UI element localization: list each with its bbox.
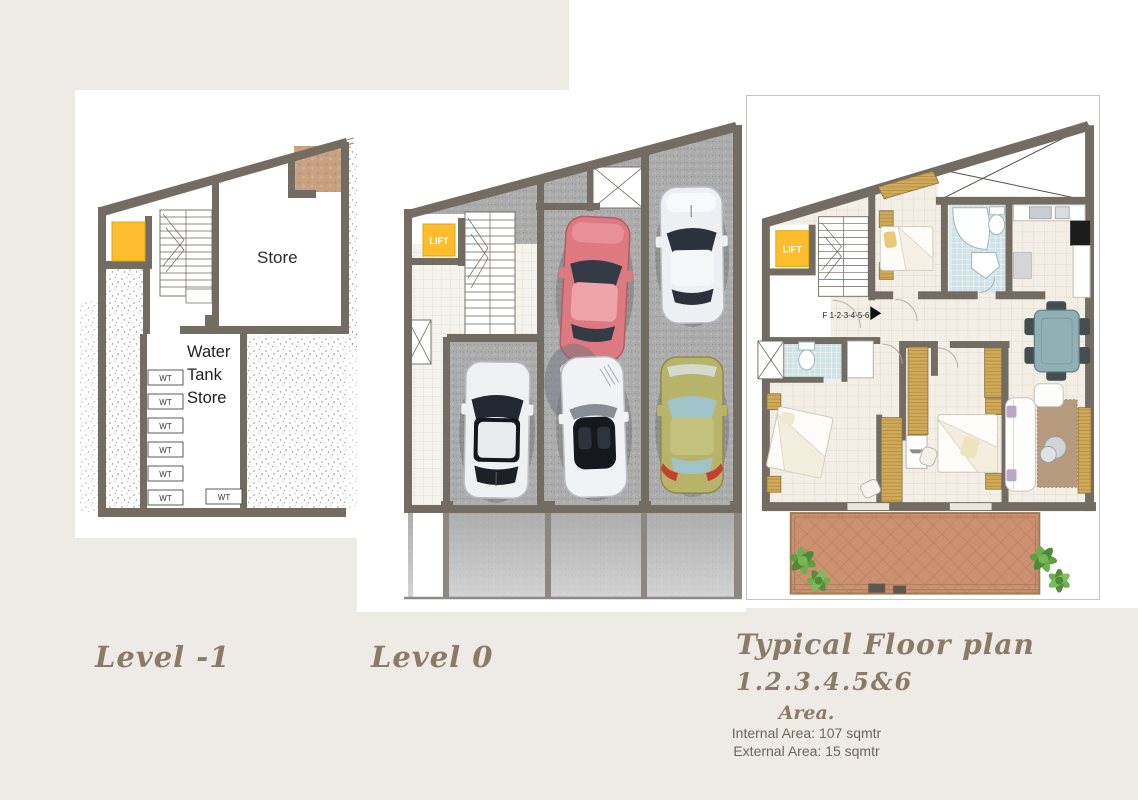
terrace-door [847,503,889,510]
typical-floor-card: LIFT F 1-2-3-4-5-6 [746,95,1100,600]
svg-text:WT: WT [218,493,231,502]
car-olive [655,357,729,497]
external-area: External Area: 15 sqmtr [704,742,909,760]
internal-area: Internal Area: 107 sqmtr [704,724,909,742]
typical-floor-subtitle: 1.2.3.4.5&6 [736,667,913,696]
svg-text:WT: WT [159,494,172,503]
svg-text:WT: WT [159,446,172,455]
driveway [404,513,742,598]
svg-text:WT: WT [159,374,172,383]
svg-text:Tank: Tank [187,366,223,384]
lift-label: LIFT [783,245,802,255]
svg-text:Water: Water [187,343,231,361]
terrace-door [950,503,992,510]
stairs [465,212,515,338]
car-white-sedan [654,186,730,327]
side-shaft [758,341,784,379]
typical-floor-title: Typical Floor plan [736,628,1035,661]
lift-label: LIFT [430,236,449,246]
car-pink-sedan [552,215,638,367]
svg-text:WT: WT [159,470,172,479]
flat-ref-label: F 1-2-3-4-5-6 [823,311,870,320]
brochure-page: Store Water Tank Store WT WT WT WT WT WT… [0,0,1138,800]
water-tank-label: Water Tank Store [187,343,231,407]
level0-plan: LIFT [357,90,746,612]
level0-caption: Level 0 [371,640,493,674]
lift-box: LIFT [423,224,455,256]
store-label: Store [257,248,298,267]
level0-card: LIFT [357,90,746,612]
typical-floor-plan: LIFT F 1-2-3-4-5-6 [747,96,1099,599]
svg-text:Store: Store [187,389,226,407]
area-block: Area. Internal Area: 107 sqmtr External … [704,702,909,760]
svg-text:WT: WT [159,422,172,431]
lift-box [112,222,145,261]
lift-box: LIFT [776,231,809,267]
area-heading: Area. [704,702,909,724]
level-minus1-caption: Level -1 [95,640,230,674]
car-lift-shaft [593,167,643,208]
svg-text:WT: WT [159,398,172,407]
stairs [819,217,869,297]
car-white-suv [458,360,536,503]
stairs [160,210,212,303]
